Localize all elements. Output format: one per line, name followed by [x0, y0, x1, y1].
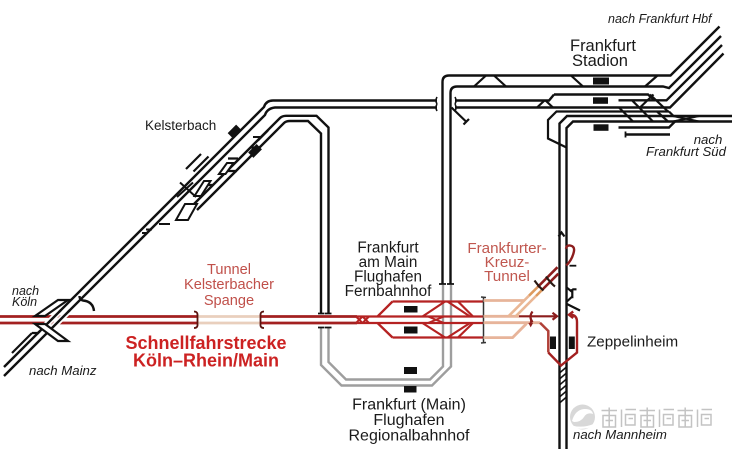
svg-text:Köln: Köln — [12, 295, 37, 309]
svg-text:Kelsterbach: Kelsterbach — [145, 118, 216, 133]
svg-text:Flughafen: Flughafen — [373, 412, 444, 429]
svg-text:Stadion: Stadion — [572, 52, 628, 70]
svg-text:nach Mainz: nach Mainz — [29, 363, 97, 378]
svg-text:Regionalbahnhof: Regionalbahnhof — [349, 428, 471, 445]
svg-text:Tunnel: Tunnel — [484, 268, 530, 285]
svg-text:Fernbahnhof: Fernbahnhof — [345, 283, 432, 300]
svg-text:nach Mannheim: nach Mannheim — [573, 427, 667, 442]
svg-text:Frankfurt Süd: Frankfurt Süd — [646, 144, 727, 159]
svg-text:Zeppelinheim: Zeppelinheim — [587, 334, 678, 351]
svg-text:nach Frankfurt Hbf: nach Frankfurt Hbf — [608, 12, 713, 26]
svg-text:Spange: Spange — [204, 293, 254, 309]
svg-text:Tunnel: Tunnel — [207, 262, 251, 278]
svg-text:Köln–Rhein/Main: Köln–Rhein/Main — [133, 351, 279, 371]
svg-text:Kelsterbacher: Kelsterbacher — [184, 277, 274, 293]
svg-text:Frankfurt (Main): Frankfurt (Main) — [352, 397, 466, 414]
